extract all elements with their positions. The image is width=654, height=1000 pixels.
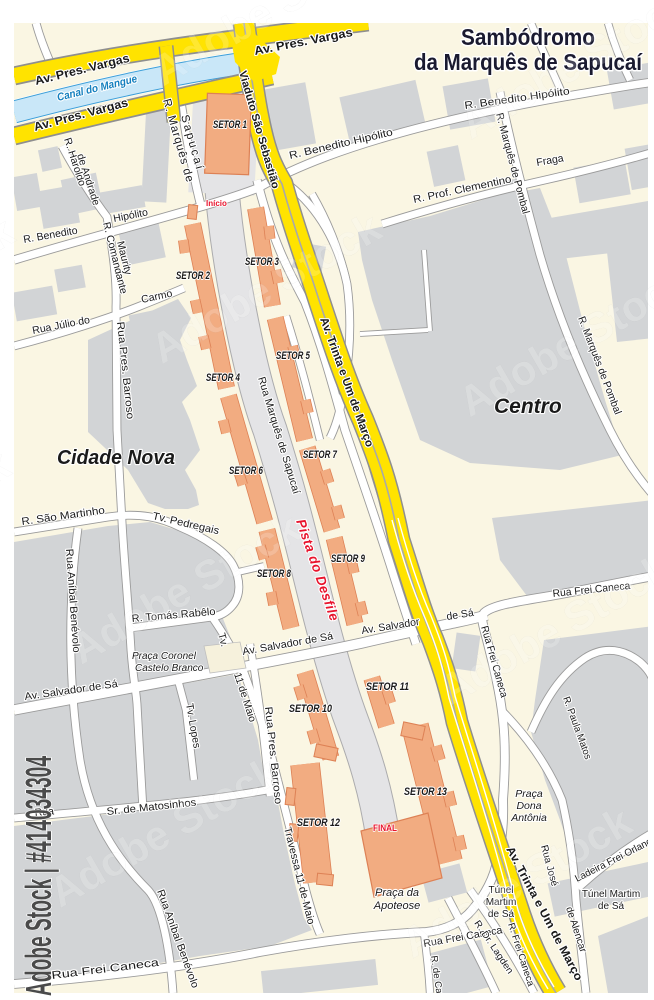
svg-text:Dona: Dona xyxy=(516,800,541,812)
svg-text:Apoteose: Apoteose xyxy=(373,900,420,912)
svg-text:SETOR 2: SETOR 2 xyxy=(176,270,210,282)
svg-text:Praça Coronel: Praça Coronel xyxy=(132,651,197,662)
svg-text:Praça da: Praça da xyxy=(375,887,419,899)
svg-text:Túnel Martim: Túnel Martim xyxy=(582,889,640,900)
svg-text:Cidade Nova: Cidade Nova xyxy=(57,447,175,469)
svg-text:SETOR 6: SETOR 6 xyxy=(229,465,264,477)
svg-text:SETOR 7: SETOR 7 xyxy=(303,449,338,461)
svg-text:FINAL: FINAL xyxy=(373,823,397,833)
svg-text:SETOR 4: SETOR 4 xyxy=(206,372,240,384)
svg-text:Adobe Stock | #414034304: Adobe Stock | #414034304 xyxy=(18,756,60,996)
svg-text:SETOR 13: SETOR 13 xyxy=(404,786,447,798)
svg-text:SETOR 11: SETOR 11 xyxy=(366,681,409,693)
svg-text:Antônia: Antônia xyxy=(510,812,547,824)
svg-text:Praça: Praça xyxy=(515,788,543,800)
svg-text:SETOR 1: SETOR 1 xyxy=(213,119,247,131)
svg-text:de Sá: de Sá xyxy=(598,901,625,912)
svg-text:Início: Início xyxy=(206,199,227,208)
svg-text:SETOR 10: SETOR 10 xyxy=(289,703,333,715)
svg-text:SETOR 9: SETOR 9 xyxy=(331,553,366,565)
svg-text:SETOR 5: SETOR 5 xyxy=(276,350,311,362)
svg-text:SETOR 12: SETOR 12 xyxy=(297,817,340,829)
svg-text:Castelo Branco: Castelo Branco xyxy=(135,663,204,674)
